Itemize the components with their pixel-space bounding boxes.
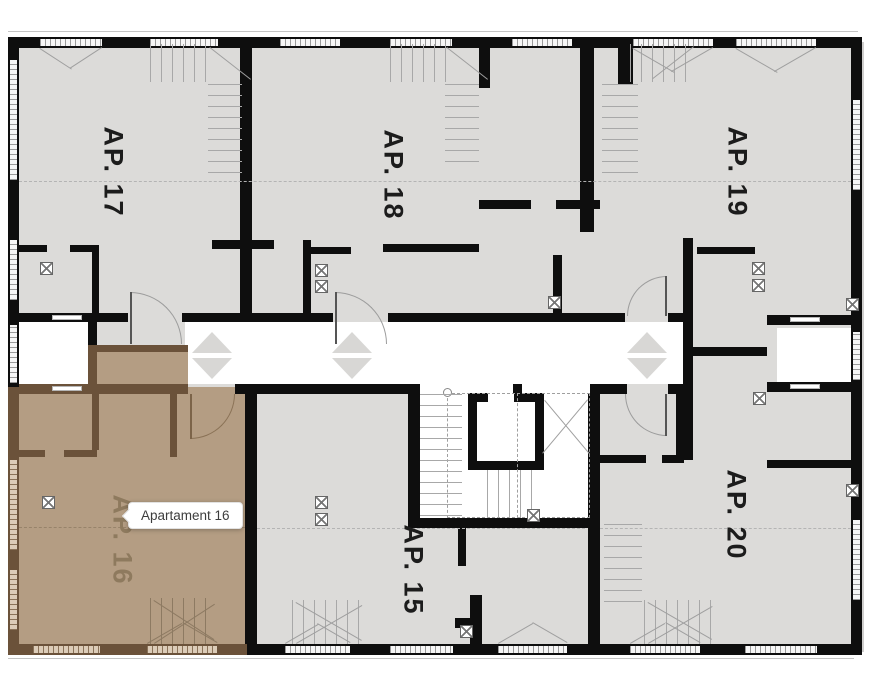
wall [590,384,627,394]
wall [88,345,188,352]
wall [668,313,683,322]
window [10,570,17,630]
wall [388,313,625,322]
wall [182,313,333,322]
tooltip: Apartament 16 [128,502,243,529]
apartment-region-17[interactable] [19,48,239,312]
apartment-region-15[interactable] [257,394,587,644]
window [40,39,102,46]
window [512,39,572,46]
wall [240,249,252,313]
window [736,39,816,46]
apartment-region-16[interactable] [19,352,245,644]
window [147,646,217,653]
window-sill [790,317,820,322]
window [853,100,860,190]
window-sill [52,315,82,320]
arrow-down-icon [332,358,372,379]
window [853,332,860,380]
window-sill [790,384,820,389]
window [10,240,17,300]
floor-plan: AP. 17 AP. 18 AP. 19 AP. 16 AP. 15 AP. 2… [0,0,870,686]
apartment-region-19[interactable] [633,48,851,312]
tooltip-text: Apartament 16 [141,508,230,523]
arrow-up-icon [627,332,667,353]
window [280,39,340,46]
wall [245,384,257,655]
wall [580,37,594,232]
window [745,646,817,653]
wall [235,384,417,394]
window [498,646,567,653]
window [10,460,17,550]
window [630,646,700,653]
arrow-up-icon [192,332,232,353]
window [33,646,100,653]
arrow-down-icon [627,358,667,379]
window [10,325,17,383]
wall [588,528,600,655]
wall [668,384,683,394]
apartment-region-20[interactable] [600,394,851,644]
window [10,60,17,180]
window [853,520,860,600]
window [390,646,453,653]
wall [683,347,767,356]
window [285,646,350,653]
arrow-up-icon [332,332,372,353]
apartment-region-18[interactable] [252,48,580,312]
